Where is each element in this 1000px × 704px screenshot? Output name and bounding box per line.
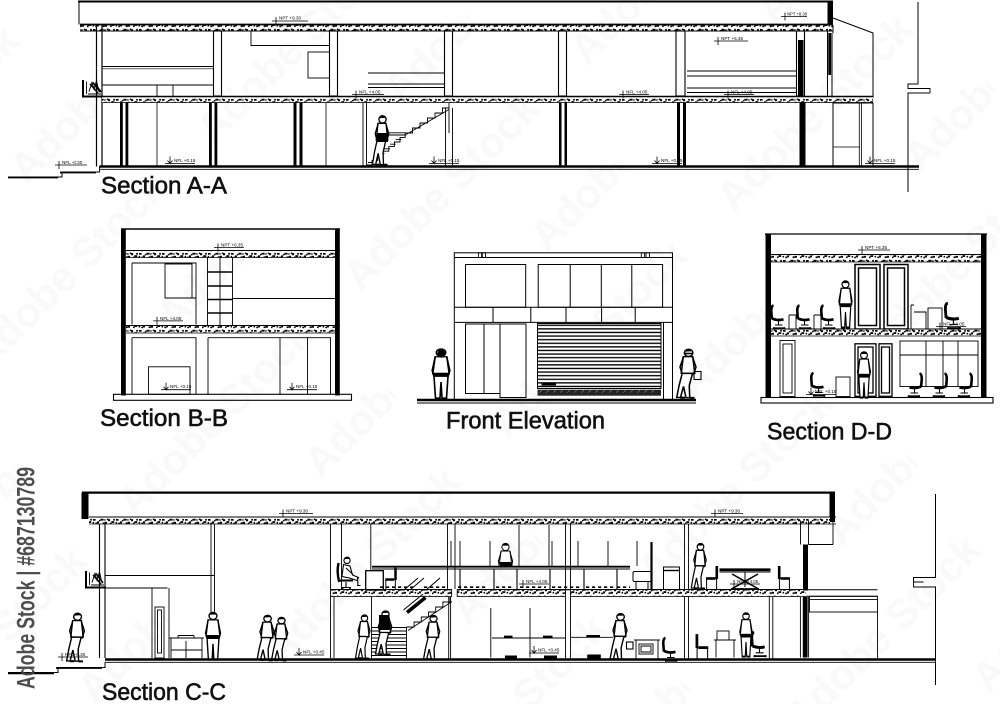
svg-text:NFL +4.05: NFL +4.05 <box>626 90 648 95</box>
svg-text:NFL +4.05: NFL +4.05 <box>526 579 548 584</box>
svg-text:NPT +9.30: NPT +9.30 <box>286 509 308 514</box>
svg-text:Section C-C: Section C-C <box>102 679 226 704</box>
svg-text:NFL +0.15: NFL +0.15 <box>874 158 896 163</box>
svg-text:NFL -0.30: NFL -0.30 <box>65 652 86 657</box>
svg-text:NFL +0.15: NFL +0.15 <box>174 158 196 163</box>
svg-text:Section A-A: Section A-A <box>101 173 228 200</box>
svg-text:NFL +4.05: NFL +4.05 <box>943 322 965 327</box>
svg-text:NFL +0.15: NFL +0.15 <box>170 384 192 389</box>
svg-text:Section B-B: Section B-B <box>100 405 228 432</box>
svg-text:Section D-D: Section D-D <box>767 419 892 446</box>
svg-text:NFL +0.15: NFL +0.15 <box>661 158 683 163</box>
svg-text:NFL +0.15: NFL +0.15 <box>815 389 837 394</box>
svg-text:NPT +6.35: NPT +6.35 <box>721 36 743 41</box>
svg-text:NPT +9.30: NPT +9.30 <box>279 16 301 21</box>
svg-text:NPT +9.30: NPT +9.30 <box>787 12 808 17</box>
svg-text:NFL -0.30: NFL -0.30 <box>62 160 83 165</box>
svg-text:NFL +4.05: NFL +4.05 <box>731 90 753 95</box>
svg-text:NFL +0.45: NFL +0.45 <box>538 648 560 653</box>
svg-text:NFL +4.05: NFL +4.05 <box>359 90 381 95</box>
svg-text:NFL +4.05: NFL +4.05 <box>737 579 759 584</box>
svg-text:NFL +0.15: NFL +0.15 <box>438 158 460 163</box>
svg-text:NPT +6.35: NPT +6.35 <box>221 243 243 248</box>
svg-text:Adobe Stock | #687130789: Adobe Stock | #687130789 <box>11 467 40 689</box>
svg-text:NFL +4.05: NFL +4.05 <box>160 316 182 321</box>
svg-text:NFL +0.45: NFL +0.45 <box>303 650 325 655</box>
svg-text:Front Elevation: Front Elevation <box>446 408 605 435</box>
svg-text:NPT +9.30: NPT +9.30 <box>718 509 740 514</box>
svg-text:NFL +0.15: NFL +0.15 <box>296 384 318 389</box>
svg-text:NPT +6.35: NPT +6.35 <box>865 245 887 250</box>
